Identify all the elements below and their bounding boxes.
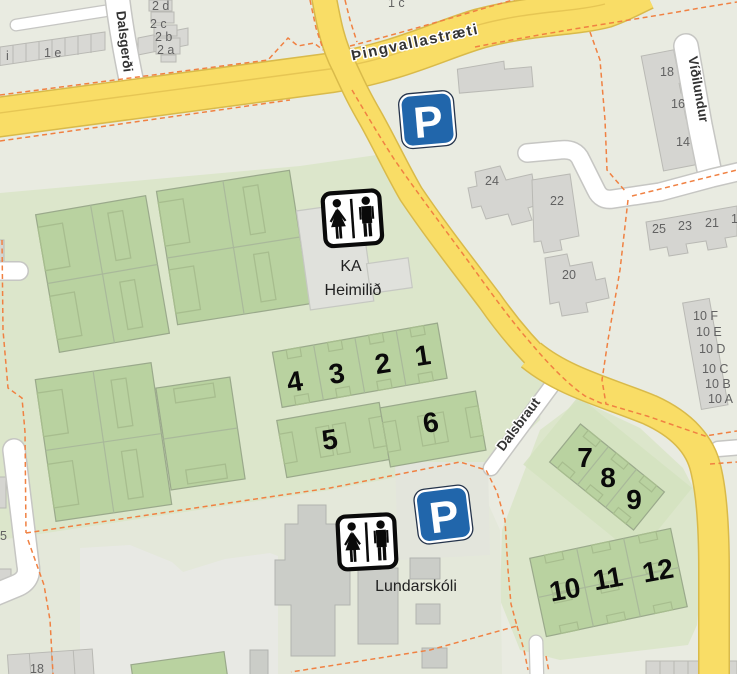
svg-text:18: 18 xyxy=(660,65,674,79)
svg-text:10 B: 10 B xyxy=(705,377,731,391)
svg-text:18: 18 xyxy=(30,662,44,674)
svg-text:5: 5 xyxy=(0,529,7,543)
svg-text:25: 25 xyxy=(652,222,666,236)
svg-text:7: 7 xyxy=(577,442,593,473)
svg-text:10 A: 10 A xyxy=(708,392,734,406)
svg-text:2 a: 2 a xyxy=(157,43,174,57)
svg-text:10 C: 10 C xyxy=(702,362,728,376)
svg-text:10: 10 xyxy=(547,572,583,608)
svg-text:22: 22 xyxy=(550,194,564,208)
svg-text:KA: KA xyxy=(340,258,362,275)
svg-text:2 b: 2 b xyxy=(155,30,172,44)
svg-text:2 d: 2 d xyxy=(152,0,169,13)
svg-text:14: 14 xyxy=(676,135,690,149)
svg-text:10 D: 10 D xyxy=(699,342,725,356)
svg-text:2 c: 2 c xyxy=(150,17,167,31)
svg-text:i: i xyxy=(6,49,9,63)
svg-text:24: 24 xyxy=(485,174,499,188)
svg-text:11: 11 xyxy=(591,561,626,597)
svg-text:1: 1 xyxy=(731,212,737,226)
svg-text:10 E: 10 E xyxy=(696,325,722,339)
svg-text:Lundarskóli: Lundarskóli xyxy=(375,578,457,595)
svg-text:1 c: 1 c xyxy=(388,0,405,10)
svg-text:10 F: 10 F xyxy=(693,309,718,323)
svg-text:9: 9 xyxy=(626,484,642,515)
svg-text:12: 12 xyxy=(640,553,676,589)
svg-text:21: 21 xyxy=(705,216,719,230)
svg-text:1 e: 1 e xyxy=(44,46,61,60)
svg-text:8: 8 xyxy=(600,462,616,493)
svg-text:16: 16 xyxy=(671,97,685,111)
svg-text:23: 23 xyxy=(678,219,692,233)
svg-text:20: 20 xyxy=(562,268,576,282)
svg-text:Heimilið: Heimilið xyxy=(325,282,382,299)
